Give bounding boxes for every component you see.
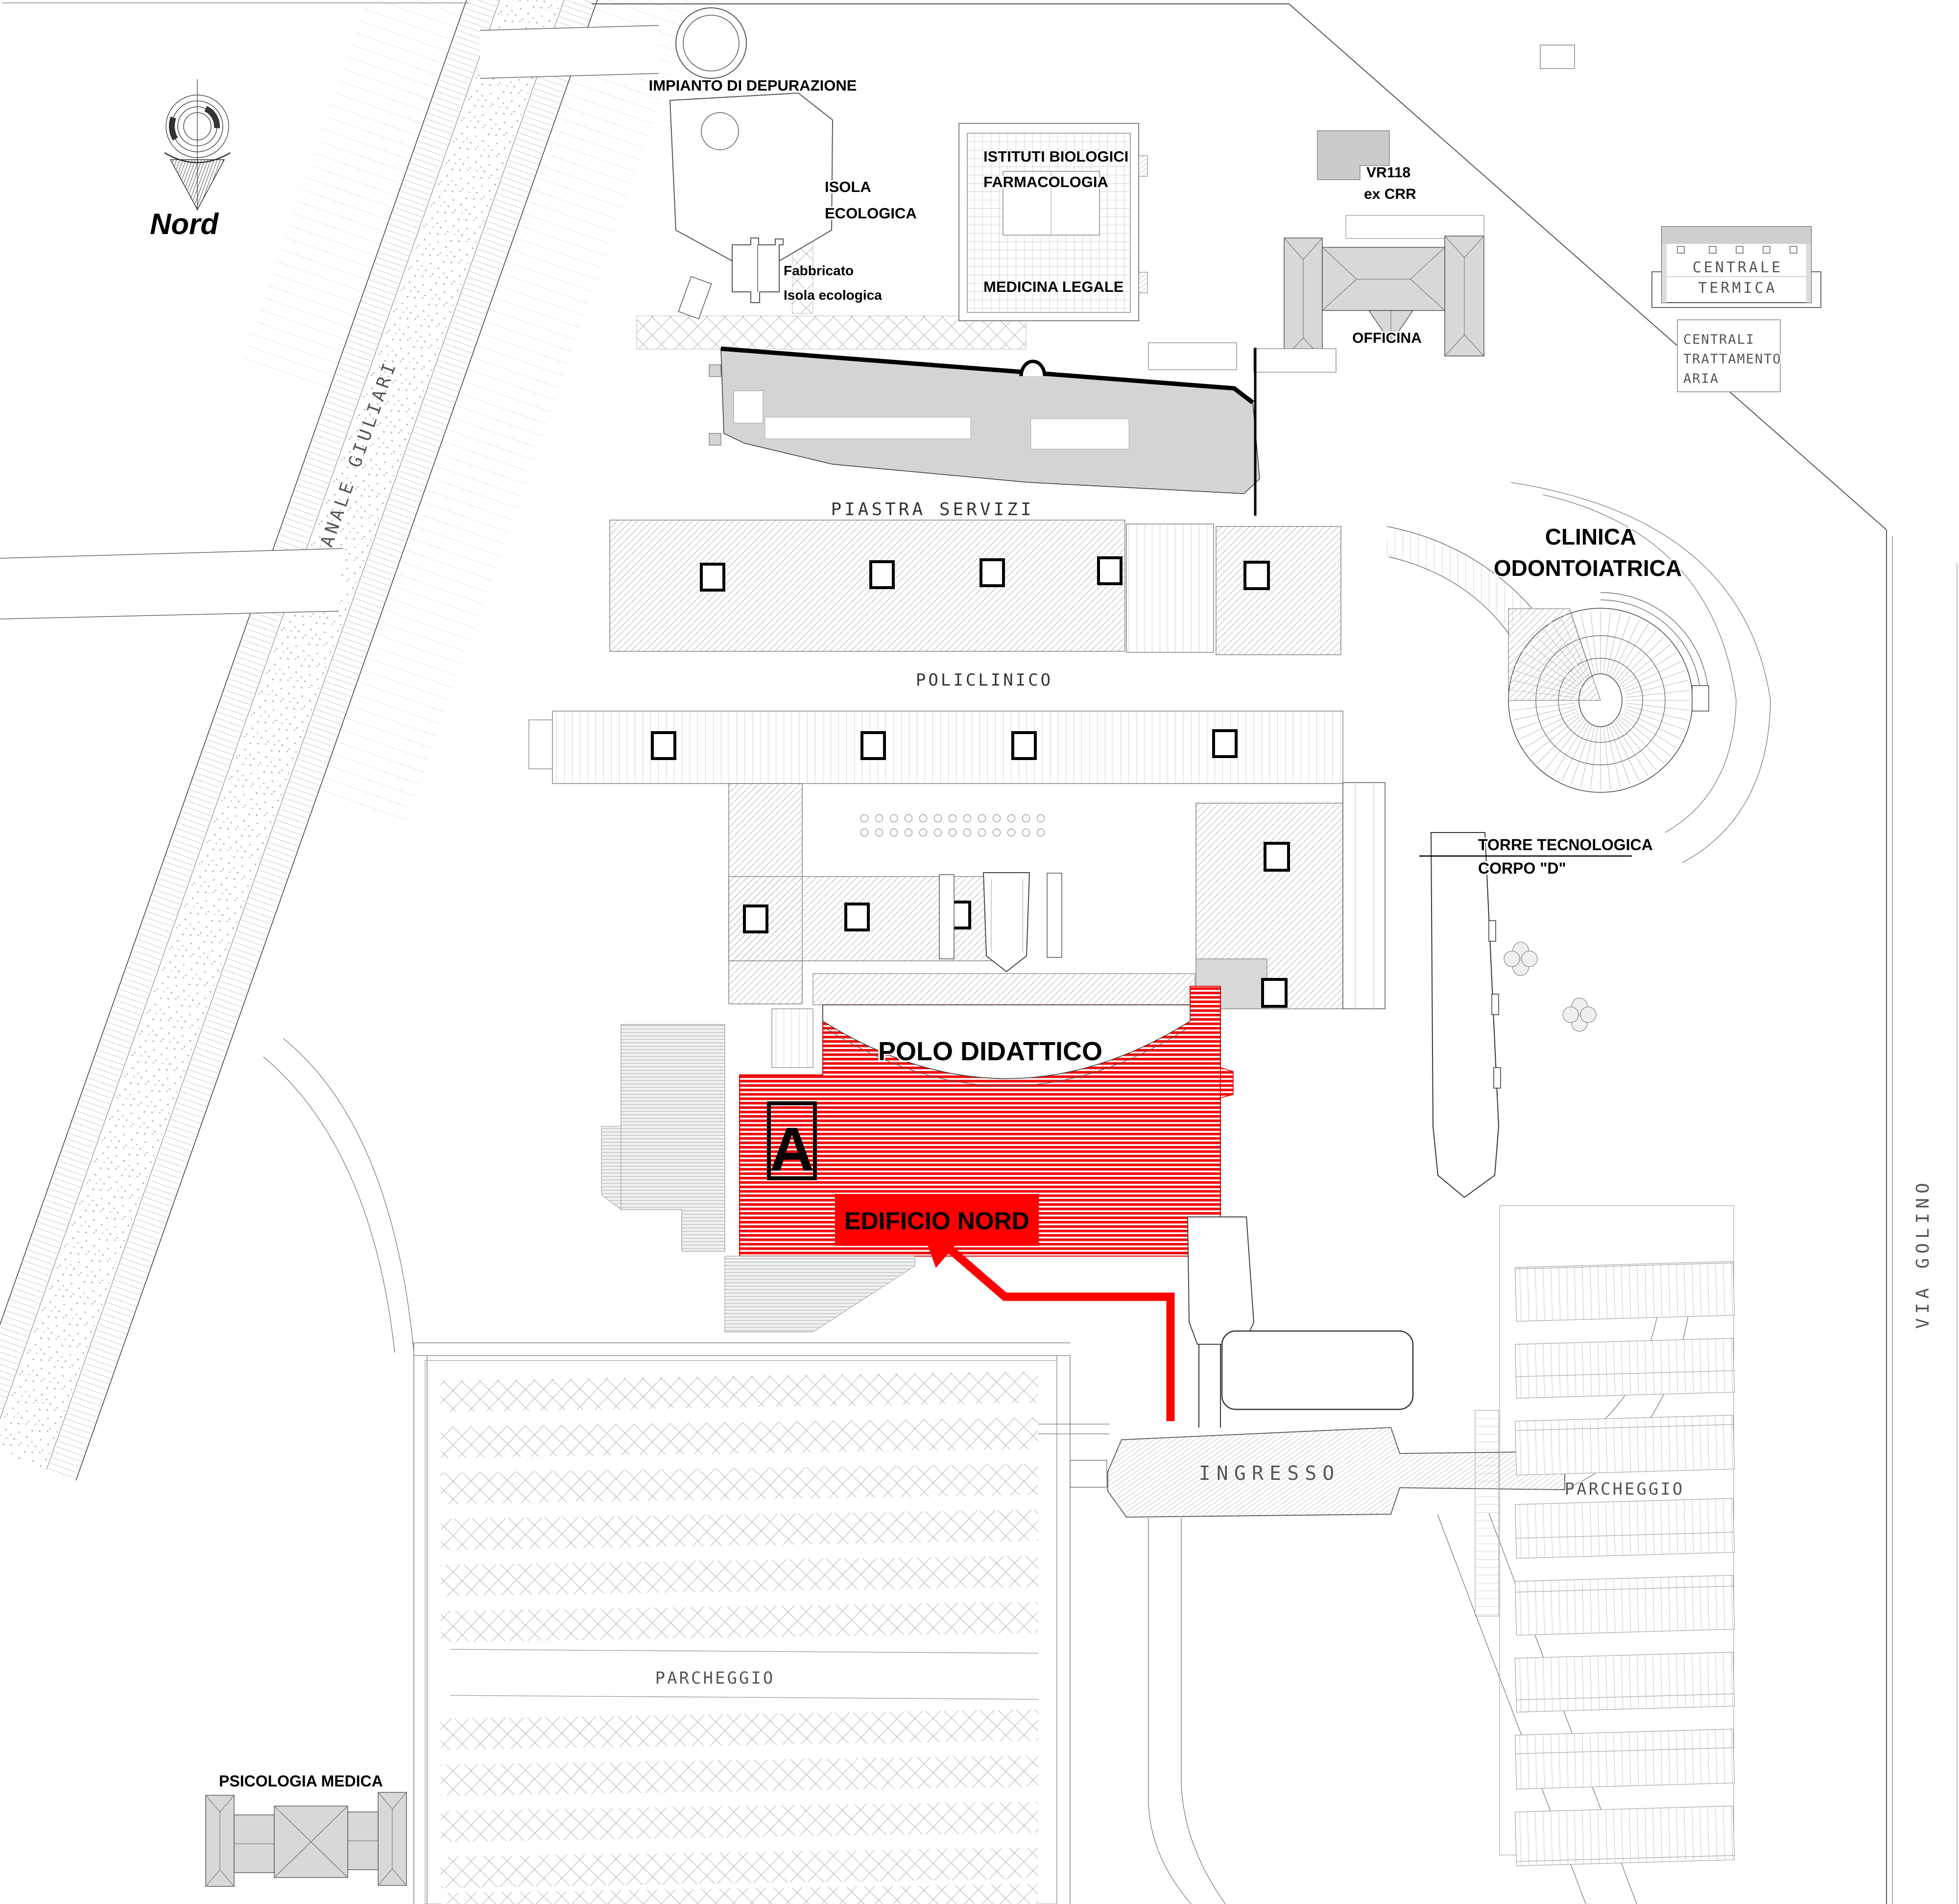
label-piastra-servizi: PIASTRA SERVIZI: [831, 500, 1034, 520]
vent-circle: [905, 829, 912, 836]
label-via-golino: VIA GOLINO: [1913, 1179, 1933, 1329]
label-polo-didattico: POLO DIDATTICO: [878, 1037, 1102, 1066]
building-small-north: [1540, 45, 1575, 69]
label-ingresso: INGRESSO: [1199, 1462, 1340, 1485]
label-psicologia: PSICOLOGIA MEDICA: [219, 1772, 383, 1790]
label-vr118-2: ex CRR: [1364, 186, 1416, 202]
building-policlinico-upper: [610, 520, 1341, 655]
parking-row: [1515, 1338, 1735, 1398]
vent-circle: [979, 815, 986, 822]
parking-bottom: [425, 1360, 1057, 1904]
label-impianto: IMPIANTO DI DEPURAZIONE: [649, 77, 857, 94]
label-policlinico: POLICLINICO: [916, 670, 1053, 690]
label-torre-2: CORPO "D": [1478, 859, 1566, 877]
vent-circle: [1037, 829, 1045, 836]
vent-circle: [890, 829, 898, 836]
parking-row: [1515, 1575, 1735, 1635]
vent-circle: [934, 815, 942, 822]
label-nord: Nord: [150, 208, 219, 240]
vent-circle: [979, 829, 986, 836]
vent-circle: [1037, 815, 1045, 822]
label-istituti-2: FARMACOLOGIA: [983, 173, 1108, 190]
vent-circle: [1008, 829, 1015, 836]
vent-circle: [993, 815, 1001, 822]
vent-circle: [861, 815, 868, 822]
parking-row: [1515, 1729, 1735, 1789]
parking-row: [1515, 1415, 1735, 1475]
label-fabbricato-1: Fabbricato: [784, 263, 854, 278]
vent-circle: [920, 815, 927, 822]
label-vr118-1: VR118: [1366, 165, 1410, 181]
vent-circle: [1008, 815, 1015, 822]
vent-circle: [949, 829, 956, 836]
label-torre-1: TORRE TECNOLOGICA: [1478, 836, 1653, 854]
vent-circle: [964, 815, 971, 822]
label-clinica-2: ODONTOIATRICA: [1494, 555, 1682, 581]
bus-loop: [1222, 1331, 1413, 1409]
vent-circle: [934, 829, 942, 836]
label-parcheggio-bottom: PARCHEGGIO: [655, 1668, 775, 1688]
parking-row: [1515, 1261, 1735, 1321]
label-medicina: MEDICINA LEGALE: [983, 278, 1123, 295]
label-istituti-1: ISTITUTI BIOLOGICI: [983, 148, 1128, 165]
label-officina: OFFICINA: [1352, 330, 1422, 346]
label-centrali-2: TRATTAMENTO: [1683, 352, 1782, 367]
vent-circle: [861, 829, 868, 836]
vent-circle: [964, 829, 971, 836]
label-clinica-1: CLINICA: [1545, 524, 1637, 549]
parking-row: [1515, 1652, 1735, 1712]
label-fabbricato-2: Isola ecologica: [784, 287, 882, 303]
label-centrali-3: ARIA: [1683, 371, 1719, 386]
label-isola-1: ISOLA: [825, 178, 871, 195]
label-isola-2: ECOLOGICA: [825, 205, 917, 222]
building-policlinico-lower: [529, 711, 1343, 784]
vent-circle: [890, 815, 898, 822]
site-plan: CANALE GIULIARI: [0, 0, 1959, 1904]
vent-circle: [905, 815, 912, 822]
label-marker-a: A: [770, 1115, 814, 1184]
parking-row: [1515, 1806, 1735, 1866]
label-parcheggio-right: PARCHEGGIO: [1565, 1479, 1685, 1499]
label-edificio-nord: EDIFICIO NORD: [844, 1207, 1029, 1235]
label-centrali-1: CENTRALI: [1683, 332, 1755, 347]
vent-circle: [876, 829, 883, 836]
vent-circle: [993, 829, 1001, 836]
vent-circle: [920, 829, 927, 836]
vent-circle: [1023, 815, 1030, 822]
label-centrale-1: CENTRALE: [1693, 259, 1783, 276]
vent-circle: [949, 815, 956, 822]
parking-row: [1515, 1499, 1735, 1558]
building-corridor: [1343, 783, 1385, 1009]
vent-circle: [1023, 829, 1030, 836]
parking-right: [1500, 1206, 1734, 1866]
vent-circle: [876, 815, 883, 822]
label-centrale-2: TERMICA: [1698, 280, 1777, 297]
